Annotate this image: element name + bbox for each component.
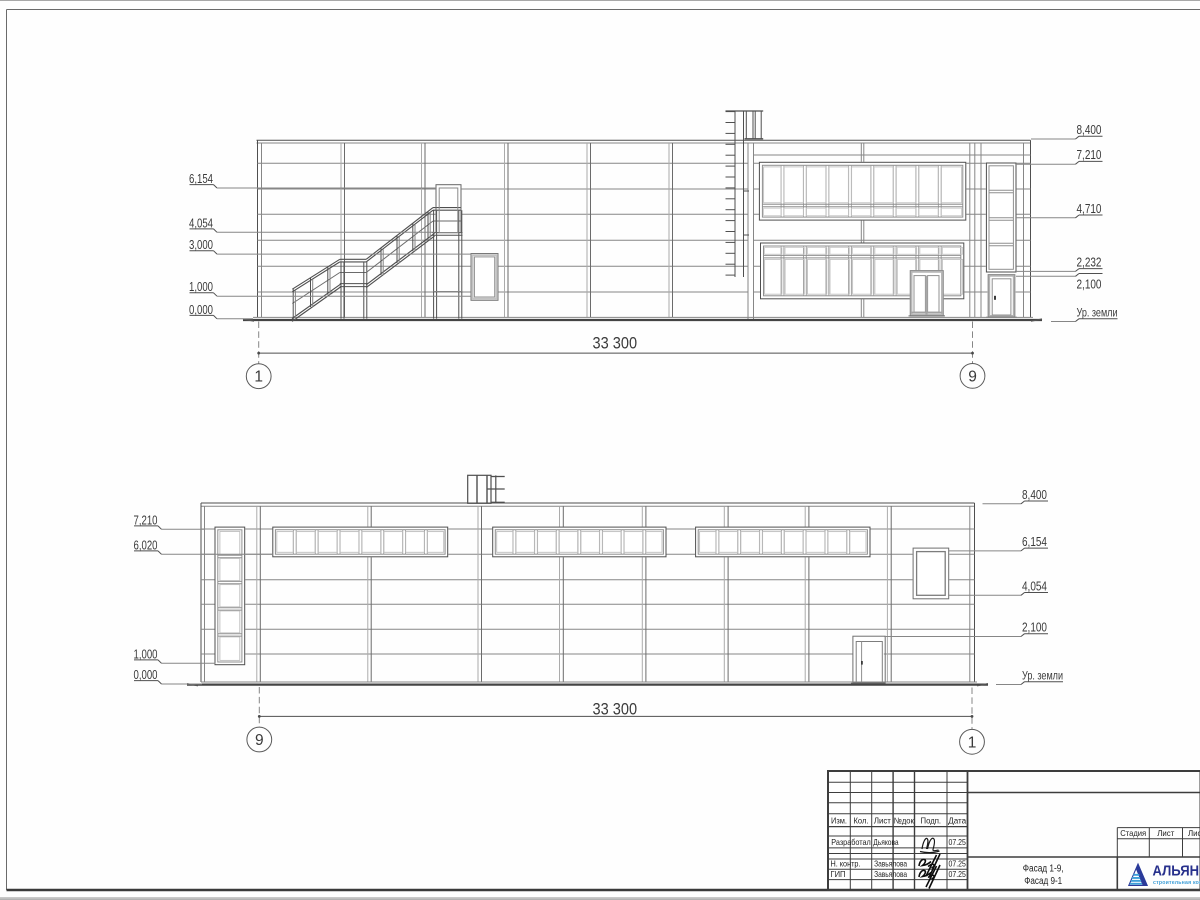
svg-text:№док: №док [894,816,914,826]
svg-text:Дьякова: Дьякова [873,837,899,847]
svg-text:9: 9 [968,368,977,385]
svg-text:Изм.: Изм. [831,816,847,826]
svg-text:0,000: 0,000 [189,302,213,317]
svg-text:Фасад 1-9,: Фасад 1-9, [1023,863,1064,874]
svg-text:Разработал: Разработал [831,837,871,847]
svg-text:Н. контр.: Н. контр. [831,859,861,869]
svg-text:Завьялова: Завьялова [874,859,907,869]
svg-text:2,100: 2,100 [1022,620,1047,635]
svg-text:8,400: 8,400 [1022,487,1047,502]
svg-text:Лист: Лист [874,816,891,826]
svg-text:7,210: 7,210 [1077,147,1102,162]
svg-text:строительная компания: строительная компания [1153,880,1200,886]
svg-text:2,232: 2,232 [1077,254,1102,269]
svg-text:Кол.: Кол. [854,816,869,826]
svg-text:07.25: 07.25 [949,869,967,879]
svg-text:Лист: Лист [1157,828,1174,838]
svg-text:Дата: Дата [948,816,966,826]
svg-text:07.25: 07.25 [949,837,967,847]
svg-text:6,154: 6,154 [189,171,213,186]
svg-text:Стадия: Стадия [1120,828,1146,838]
svg-text:0,000: 0,000 [134,667,158,682]
svg-text:4,054: 4,054 [1022,578,1047,593]
svg-text:Подп.: Подп. [921,816,942,826]
svg-text:07.25: 07.25 [949,859,967,869]
svg-text:2,100: 2,100 [1077,277,1102,292]
svg-text:8,400: 8,400 [1077,122,1102,137]
svg-text:7,210: 7,210 [134,512,158,527]
svg-text:АЛЬЯНС: АЛЬЯНС [1153,862,1200,879]
svg-text:1: 1 [254,369,263,386]
svg-text:6,154: 6,154 [1022,534,1047,549]
svg-text:Лист: Лист [1188,828,1200,838]
svg-text:1,000: 1,000 [134,646,158,661]
svg-text:4,054: 4,054 [189,215,213,230]
svg-text:1,000: 1,000 [189,279,213,294]
svg-text:6,020: 6,020 [134,537,158,552]
svg-text:9: 9 [255,732,264,749]
svg-text:33 300: 33 300 [593,700,638,719]
svg-text:4,710: 4,710 [1077,201,1102,216]
svg-text:3,000: 3,000 [189,237,213,252]
svg-text:1: 1 [968,734,977,751]
svg-text:Завьялова: Завьялова [874,869,907,879]
svg-text:Ур. земли: Ур. земли [1022,669,1063,683]
svg-text:33 300: 33 300 [593,333,638,352]
svg-text:ГИП: ГИП [831,869,846,879]
svg-text:Фасад 9-1: Фасад 9-1 [1024,876,1062,887]
svg-text:Ур. земли: Ур. земли [1077,306,1118,320]
